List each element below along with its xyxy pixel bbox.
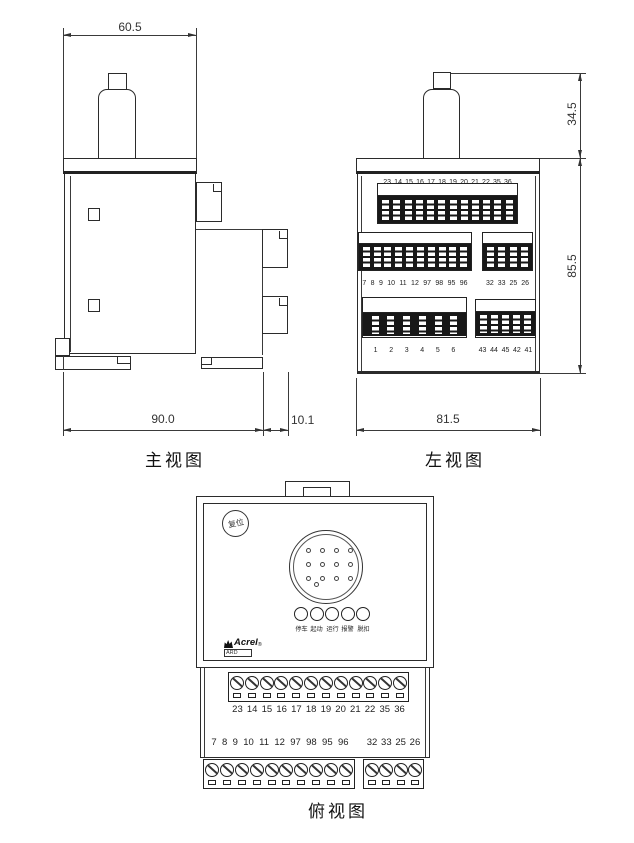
terminal-contact	[450, 200, 457, 220]
engineering-drawing-sheet: 60.5 90.0 10.1 主视图 34.5 85.5	[0, 0, 634, 843]
terminal-block-row2-left	[358, 232, 472, 271]
terminal-contact	[438, 200, 445, 220]
terminal-block-row3-left	[362, 297, 467, 338]
screw-strip-2	[203, 759, 355, 789]
reset-button-label: 复位	[227, 516, 245, 530]
terminal-contact	[472, 200, 479, 220]
terminal-number: 32	[486, 280, 494, 287]
led-label: 运行	[326, 623, 338, 633]
screw-terminal	[394, 763, 408, 788]
screw-head-icon	[294, 763, 308, 777]
terminal-number: 19	[449, 179, 457, 186]
terminal-clamp	[208, 780, 216, 786]
terminal-number: 14	[394, 179, 402, 186]
screw-head-icon	[339, 763, 353, 777]
knob-tip-left	[433, 72, 451, 89]
terminal-number: 2	[389, 347, 393, 354]
screw-head-icon	[205, 763, 219, 777]
screw-head-icon	[279, 763, 293, 777]
led-label: 停车	[295, 623, 307, 633]
screw-terminal	[250, 763, 264, 788]
terminal-numbers-row3-right: 4344454241	[475, 346, 536, 355]
terminal-contacts-row1	[378, 196, 517, 223]
terminal-numbers-row1-clipped: 231415161718192021223536	[380, 178, 515, 187]
dim-arrow	[578, 150, 582, 158]
terminal-contact	[494, 200, 501, 220]
front-view-label: 主视图	[127, 446, 223, 471]
terminal-contact	[428, 247, 435, 267]
terminal-number: 8	[222, 737, 227, 748]
speaker-hole	[320, 576, 325, 581]
dim-text-81-5: 81.5	[356, 412, 540, 426]
led-lamp-icon	[341, 607, 355, 621]
terminal-number: 12	[411, 280, 419, 287]
extension-line	[263, 372, 264, 436]
screw-head-icon	[408, 763, 422, 777]
terminal-clamp	[411, 780, 419, 786]
profile-shelf-line	[196, 229, 262, 230]
terminal-contact	[449, 247, 456, 267]
terminal-number: 22	[482, 179, 490, 186]
terminal-numbers-row2-left: 78910111297989596	[358, 279, 472, 288]
terminal-contact	[387, 316, 394, 334]
terminal-contact	[461, 200, 468, 220]
speaker-hole	[334, 548, 339, 553]
dim-line-81-5	[356, 430, 540, 431]
terminal-contact	[483, 200, 490, 220]
dim-arrow	[578, 73, 582, 81]
terminal-number: 97	[290, 737, 301, 748]
device-body-front	[64, 174, 196, 354]
led-lamp-icon	[294, 607, 308, 621]
top-view-label: 俯视图	[290, 797, 386, 822]
terminal-contact	[393, 200, 400, 220]
led-indicator: 起动	[310, 607, 324, 633]
terminal-number: 11	[259, 737, 269, 748]
terminal-block-row2-right	[482, 232, 533, 271]
led-lamp-icon	[325, 607, 339, 621]
extension-line	[288, 372, 289, 436]
led-lamp-icon	[310, 607, 324, 621]
terminal-number: 9	[233, 737, 238, 748]
terminal-contact	[510, 247, 517, 267]
terminal-contact	[480, 315, 487, 333]
terminal-number: 95	[448, 280, 456, 287]
terminal-contact	[506, 200, 513, 220]
screw-head-icon	[324, 763, 338, 777]
terminal-numbers-row2-right: 32332526	[482, 279, 533, 288]
terminal-number: 12	[274, 737, 285, 748]
terminal-number: 8	[371, 280, 375, 287]
top-cap-left	[356, 158, 540, 174]
terminal-number: 96	[460, 280, 468, 287]
terminal-contact	[435, 316, 442, 334]
dim-line-vertical	[580, 73, 581, 373]
terminal-contact	[403, 316, 410, 334]
dim-arrow	[578, 158, 582, 166]
terminal-number: 97	[423, 280, 431, 287]
led-indicator: 运行	[325, 607, 339, 633]
terminal-number: 25	[509, 280, 517, 287]
terminal-cover	[483, 233, 532, 244]
terminal-contacts-row3-right	[476, 312, 535, 336]
terminal-contact	[460, 247, 467, 267]
speaker-hole	[320, 562, 325, 567]
led-row: 停车起动运行报警脱扣	[294, 607, 370, 633]
terminal-clamp	[382, 780, 390, 786]
screw-terminal	[220, 763, 234, 788]
mount-slot-upper	[88, 208, 100, 221]
body-inner-line	[535, 176, 536, 371]
terminal-clamp	[282, 780, 290, 786]
terminal-clamp	[342, 780, 350, 786]
terminal-number: 20	[460, 179, 468, 186]
wall-inner-line	[425, 668, 426, 757]
dim-text-34-5: 34.5	[565, 94, 579, 134]
terminal-block-row1	[377, 183, 518, 224]
led-label: 脱扣	[357, 623, 369, 633]
extension-line	[451, 73, 586, 74]
dim-arrow	[188, 33, 196, 37]
dim-arrow	[356, 428, 364, 432]
terminal-contact	[382, 200, 389, 220]
terminal-contacts-row3-left	[363, 313, 466, 336]
din-clip	[55, 338, 70, 356]
terminal-contact	[487, 247, 494, 267]
screw-terminal	[279, 763, 293, 788]
terminal-number: 98	[306, 737, 317, 748]
terminal-contact	[502, 315, 509, 333]
screw-terminal	[235, 763, 249, 788]
knob-tip-front	[108, 73, 127, 90]
dim-text-85-5: 85.5	[565, 246, 579, 286]
acrel-logo-mark-icon	[224, 640, 233, 648]
top-cap-front	[63, 158, 197, 174]
terminal-contact	[491, 315, 498, 333]
terminal-clamp	[268, 780, 276, 786]
profile-notch	[213, 184, 221, 192]
speaker-holes	[289, 530, 363, 604]
terminal-contact	[524, 315, 531, 333]
terminal-numbers-strip3: 32332526	[363, 736, 424, 748]
terminal-number: 3	[405, 347, 409, 354]
speaker-hole	[306, 576, 311, 581]
terminal-number: 43	[479, 347, 487, 354]
terminal-number: 33	[498, 280, 506, 287]
screw-head-icon	[220, 763, 234, 777]
terminal-number: 15	[405, 179, 413, 186]
dim-arrow	[255, 428, 263, 432]
terminal-number: 25	[395, 737, 406, 748]
wall-inner-line	[204, 668, 205, 757]
terminal-number: 10	[243, 737, 254, 748]
body-inner-line	[361, 176, 362, 371]
speaker-hole	[306, 548, 311, 553]
terminal-contact	[416, 200, 423, 220]
terminal-number: 11	[399, 280, 406, 287]
screw-terminal	[365, 763, 379, 788]
extension-line	[540, 378, 541, 436]
terminal-number: 17	[427, 179, 435, 186]
terminal-cover	[363, 298, 466, 313]
terminal-number: 44	[490, 347, 498, 354]
din-rail-divider	[63, 356, 64, 370]
led-label: 起动	[310, 623, 322, 633]
profile-notch	[279, 298, 287, 306]
speaker-hole	[334, 576, 339, 581]
terminal-number: 96	[338, 737, 349, 748]
screw-head-icon	[250, 763, 264, 777]
terminal-number: 42	[513, 347, 521, 354]
led-indicator: 停车	[294, 607, 308, 633]
terminal-number: 18	[438, 179, 446, 186]
terminal-number: 41	[524, 347, 532, 354]
led-indicator: 脱扣	[356, 607, 370, 633]
speaker-hole	[320, 548, 325, 553]
extension-line	[63, 28, 64, 159]
terminal-number: 7	[362, 280, 366, 287]
screw-strip-3	[363, 759, 424, 789]
dim-text-10-1: 10.1	[291, 413, 327, 427]
terminal-contact	[427, 200, 434, 220]
screw-head-icon	[394, 763, 408, 777]
speaker-hole	[348, 576, 353, 581]
terminal-contact	[521, 247, 528, 267]
dim-arrow	[578, 365, 582, 373]
dim-arrow	[63, 428, 71, 432]
terminal-contact	[406, 247, 413, 267]
screw-terminal	[294, 763, 308, 788]
led-indicator: 报警	[341, 607, 355, 633]
terminal-number: 5	[436, 347, 440, 354]
profile-notch	[279, 231, 287, 239]
speaker-hole	[348, 562, 353, 567]
dim-line-60-5	[63, 35, 197, 36]
terminal-number: 23	[383, 179, 391, 186]
led-lamp-icon	[356, 607, 370, 621]
brand-name: Acrel	[234, 637, 258, 648]
terminal-contact	[498, 247, 505, 267]
speaker-hole	[306, 562, 311, 567]
mount-slot-lower	[88, 299, 100, 312]
screw-head-icon	[235, 763, 249, 777]
led-label: 报警	[341, 623, 353, 633]
terminal-numbers-row3-left: 123456	[362, 346, 467, 355]
terminal-contact	[405, 200, 412, 220]
registered-trademark: ®	[258, 642, 262, 648]
dim-arrow	[280, 428, 288, 432]
terminal-number: 26	[410, 737, 421, 748]
terminal-number: 21	[471, 179, 479, 186]
terminal-number: 16	[416, 179, 424, 186]
screw-terminal	[265, 763, 279, 788]
screw-head-icon	[379, 763, 393, 777]
terminal-contacts-row2-left	[359, 244, 471, 270]
brand-logo: Acrel®	[224, 637, 262, 648]
terminal-cover	[359, 233, 471, 244]
din-rail-hook	[201, 357, 212, 365]
terminal-number: 35	[493, 179, 501, 186]
terminal-cover	[476, 300, 535, 312]
speaker-hole	[334, 562, 339, 567]
terminal-number: 33	[381, 737, 392, 748]
speaker-hole	[314, 582, 319, 587]
screw-head-icon	[265, 763, 279, 777]
reset-button: 复位	[222, 510, 249, 537]
terminal-contact	[417, 247, 424, 267]
terminal-contacts-row2-right	[483, 244, 532, 270]
screw-terminal	[309, 763, 323, 788]
screw-head-icon	[365, 763, 379, 777]
terminal-clamp	[238, 780, 246, 786]
screw-terminal	[205, 763, 219, 788]
dim-line-90-0	[63, 430, 263, 431]
terminal-clamp	[327, 780, 335, 786]
left-view-label: 左视图	[407, 446, 503, 471]
terminal-contact	[513, 315, 520, 333]
terminal-number: 95	[322, 737, 333, 748]
terminal-number: 4	[420, 347, 424, 354]
extension-line	[540, 373, 586, 374]
dim-arrow	[63, 33, 71, 37]
model-box: ARD	[224, 649, 252, 657]
profile-face-line	[262, 268, 263, 296]
dim-text-60-5: 60.5	[63, 20, 197, 34]
body-inner-line	[70, 176, 71, 352]
terminal-contact	[419, 316, 426, 334]
terminal-contact	[395, 247, 402, 267]
terminal-contact	[384, 247, 391, 267]
terminal-contact	[363, 247, 370, 267]
terminal-block-row3-right	[475, 299, 536, 338]
screw-head-icon	[309, 763, 323, 777]
knob-body-left	[423, 89, 460, 159]
dim-arrow	[532, 428, 540, 432]
terminal-number: 36	[504, 179, 512, 186]
terminal-clamp	[223, 780, 231, 786]
terminal-number: 9	[379, 280, 383, 287]
knob-body-front	[98, 89, 136, 159]
terminal-number: 7	[211, 737, 216, 748]
terminal-contact	[374, 247, 381, 267]
extension-line	[196, 28, 197, 159]
terminal-numbers-strip2: 78910111297989596	[206, 736, 354, 748]
terminal-clamp	[397, 780, 405, 786]
terminal-contact	[372, 316, 379, 334]
profile-face-line	[262, 334, 263, 355]
terminal-number: 32	[367, 737, 378, 748]
terminal-number: 6	[451, 347, 455, 354]
dim-arrow	[263, 428, 271, 432]
terminal-number: 45	[502, 347, 510, 354]
screw-terminal	[379, 763, 393, 788]
terminal-number: 10	[387, 280, 395, 287]
terminal-clamp	[253, 780, 261, 786]
extension-line	[63, 372, 64, 436]
terminal-contact	[439, 247, 446, 267]
screw-terminal	[408, 763, 422, 788]
dim-text-90-0: 90.0	[63, 412, 263, 426]
terminal-number: 26	[521, 280, 529, 287]
terminal-number: 98	[435, 280, 443, 287]
terminal-contact	[450, 316, 457, 334]
terminal-clamp	[312, 780, 320, 786]
terminal-clamp	[297, 780, 305, 786]
screw-terminal	[339, 763, 353, 788]
terminal-clamp	[368, 780, 376, 786]
screw-terminal	[324, 763, 338, 788]
terminal-number: 1	[374, 347, 378, 354]
speaker-hole	[348, 548, 353, 553]
din-rail-hook	[117, 356, 130, 364]
